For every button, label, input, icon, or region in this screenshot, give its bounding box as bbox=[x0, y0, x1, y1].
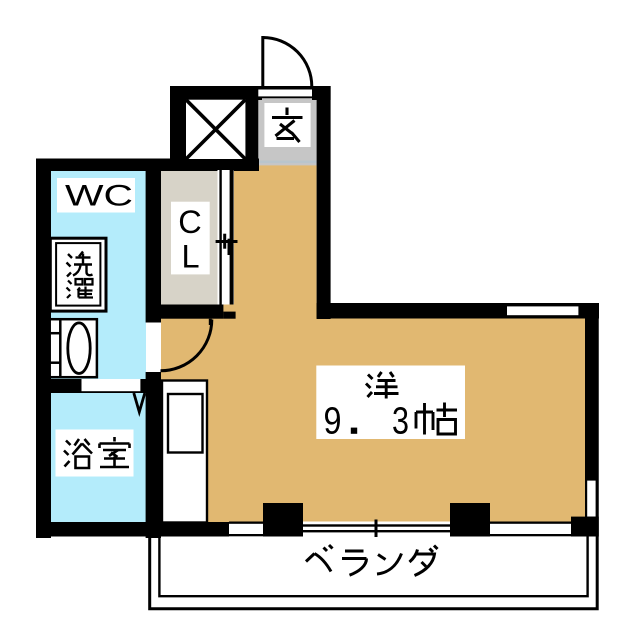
svg-text:WC: WC bbox=[65, 180, 133, 213]
svg-text:C: C bbox=[178, 204, 201, 240]
svg-text:L: L bbox=[182, 239, 200, 275]
svg-text:9: 9 bbox=[324, 401, 342, 443]
svg-text:3: 3 bbox=[392, 401, 409, 443]
